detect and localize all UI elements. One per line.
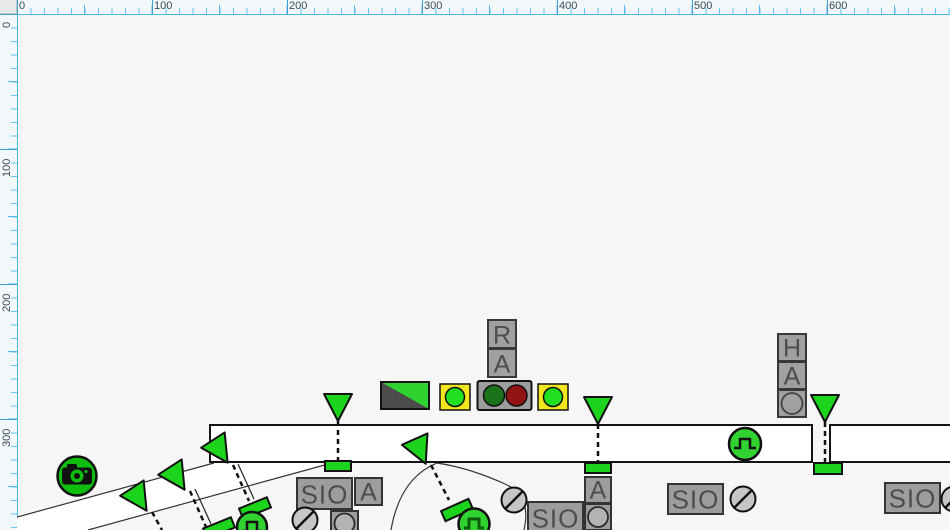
lamp-box-2[interactable] — [585, 504, 611, 530]
signal-layout-editor: R A H A SIO — [0, 0, 950, 530]
lamp-circle-icon — [544, 388, 563, 407]
ruler-left-label: 300 — [2, 429, 13, 447]
sio-box-4[interactable]: SIO — [885, 483, 940, 514]
a-label: A — [360, 479, 377, 507]
ruler-top-label: 200 — [289, 1, 307, 12]
a-box-2[interactable]: A — [585, 477, 611, 505]
pulse-icon[interactable] — [729, 428, 761, 460]
no-entry-icon[interactable] — [731, 487, 756, 512]
lamp-red-icon — [506, 385, 527, 406]
sio-label: SIO — [889, 484, 937, 514]
ruler-top-label: 0 — [19, 1, 25, 12]
pulse-icon[interactable] — [459, 509, 490, 530]
a-box-1[interactable]: A — [355, 478, 382, 507]
lamp-green-icon — [484, 385, 505, 406]
sio-box-3[interactable]: SIO — [668, 484, 723, 515]
ruler-top-label: 400 — [559, 1, 577, 12]
route-label-stack[interactable]: R A — [488, 320, 516, 379]
ruler-horizontal: 0 100 200 300 400 500 600 — [0, 0, 950, 14]
h-label: H — [783, 335, 801, 363]
ruler-left-label: 0 — [2, 22, 13, 28]
halt-label-stack[interactable]: H A — [778, 334, 806, 417]
yellow-lamp-right[interactable] — [538, 384, 568, 410]
signal3-base-icon[interactable] — [814, 463, 842, 474]
dual-lamp-indicator[interactable] — [478, 381, 532, 410]
sio-box-1[interactable]: SIO — [297, 478, 352, 510]
a-label: A — [784, 363, 801, 391]
split-indicator-icon[interactable] — [381, 382, 429, 409]
ruler-top-label: 600 — [829, 1, 847, 12]
main-track-section[interactable] — [210, 425, 812, 462]
a-label: A — [494, 351, 511, 379]
ruler-left-label: 100 — [2, 159, 13, 177]
pulse-icon[interactable] — [237, 512, 267, 530]
right-track-section[interactable] — [830, 425, 950, 462]
ruler-vertical: 0 100 200 300 — [0, 14, 17, 530]
lamp-circle-icon — [446, 388, 465, 407]
ruler-top-label: 100 — [154, 1, 172, 12]
no-entry-icon[interactable] — [502, 488, 527, 513]
ruler-left-label: 200 — [2, 294, 13, 312]
ruler-top-label: 300 — [424, 1, 442, 12]
layout-canvas[interactable]: R A H A SIO — [0, 0, 950, 530]
sio-box-2[interactable]: SIO — [528, 502, 583, 530]
sio-label: SIO — [672, 485, 720, 515]
yellow-lamp-left[interactable] — [440, 384, 470, 410]
sio-label: SIO — [532, 504, 580, 530]
signal1-base-icon[interactable] — [325, 461, 351, 471]
ruler-top-label: 500 — [694, 1, 712, 12]
sio-label: SIO — [301, 480, 349, 510]
camera-icon[interactable] — [58, 457, 97, 496]
lamp-box-1[interactable] — [331, 511, 358, 530]
ruler-corner — [0, 0, 17, 14]
signal2-base-icon[interactable] — [585, 463, 611, 473]
no-entry-icon[interactable] — [293, 508, 318, 530]
a-label: A — [590, 477, 607, 505]
r-label: R — [493, 322, 511, 350]
